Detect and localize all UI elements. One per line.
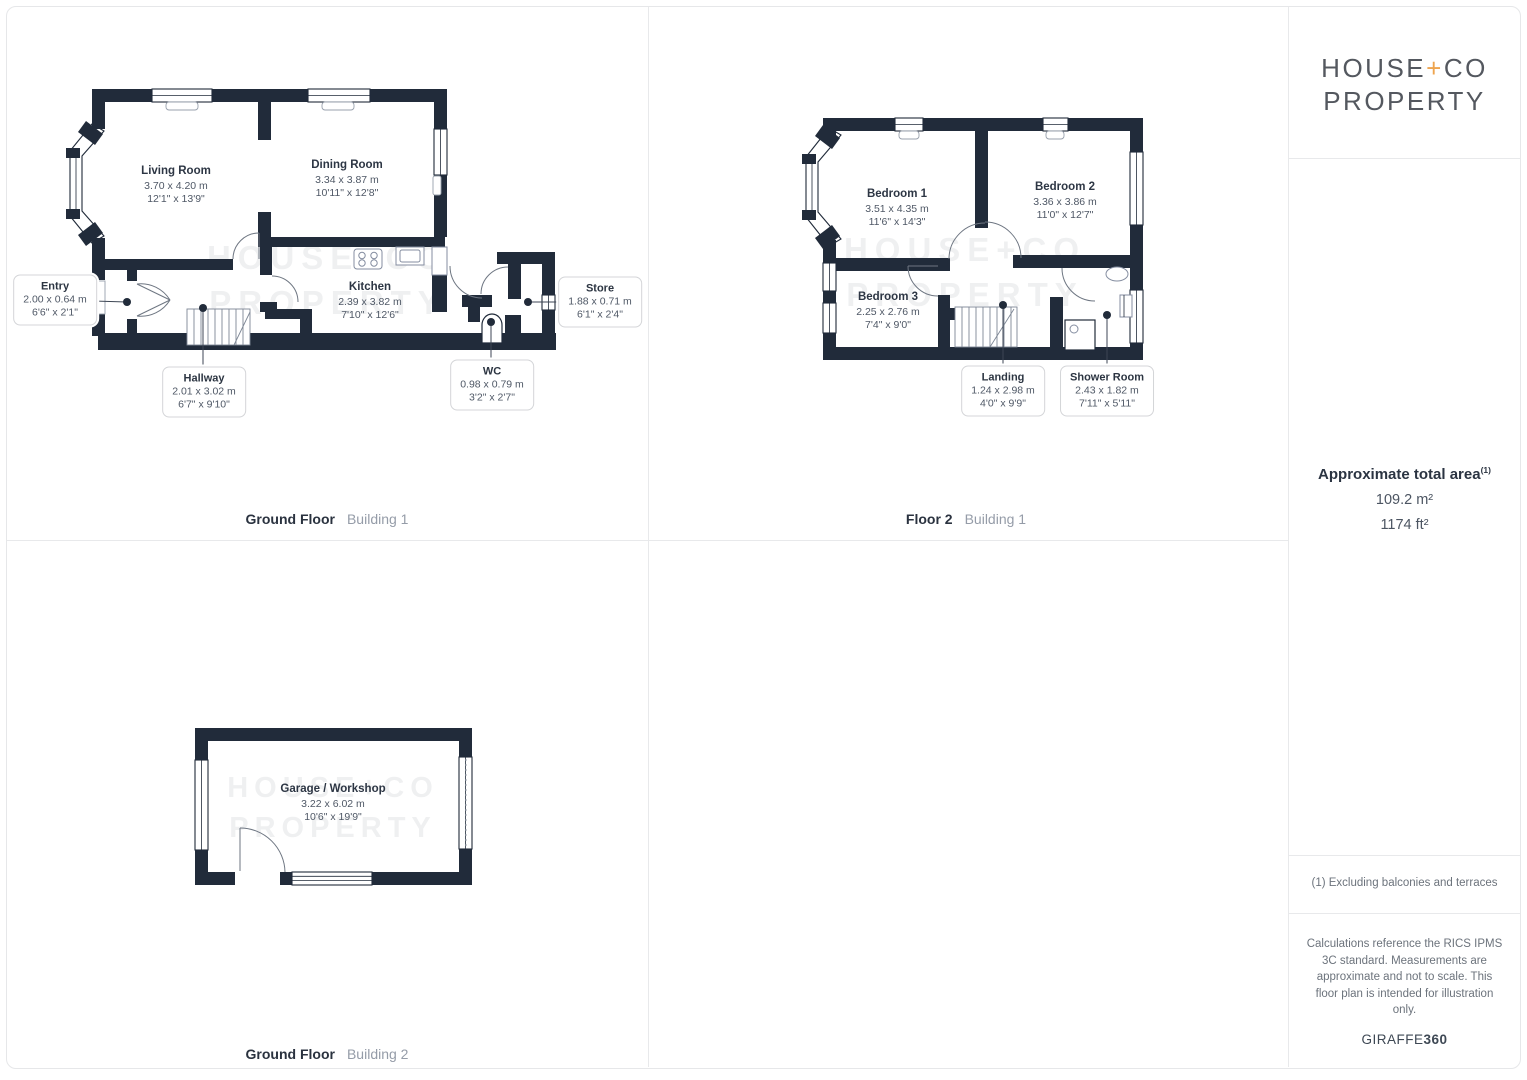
staircase-icon xyxy=(955,307,1017,347)
floor2-b1-plan xyxy=(648,0,1288,540)
doors xyxy=(240,828,285,872)
staircase-icon xyxy=(187,309,250,345)
sidebar-rule xyxy=(1289,158,1520,159)
sink-icon xyxy=(396,247,424,265)
walls xyxy=(66,89,556,350)
footnote: (1) Excluding balconies and terraces xyxy=(1289,877,1520,889)
store-tag: Store 1.88 x 0.71 m 6'1" x 2'4" xyxy=(558,277,642,328)
entry-tag: Entry 2.00 x 0.64 m 6'6" x 2'1" xyxy=(13,275,97,326)
fridge-icon xyxy=(432,247,447,275)
shower-room-tag: Shower Room 2.43 x 1.82 m 7'11" x 5'11" xyxy=(1060,366,1154,417)
gf2-caption: Ground FloorBuilding 2 xyxy=(246,1046,409,1062)
ground-floor-b1-plan xyxy=(0,0,648,540)
bay-window xyxy=(806,128,841,246)
bedroom2-label: Bedroom 2 3.36 x 3.86 m 11'0" x 12'7" xyxy=(1033,181,1097,222)
wc-tag: WC 0.98 x 0.79 m 3'2" x 2'7" xyxy=(450,360,534,411)
sidebar-rule xyxy=(1289,913,1520,914)
info-sidebar: HOUSE+CO PROPERTY Approximate total area… xyxy=(1289,6,1520,1067)
garage-label: Garage / Workshop 3.22 x 6.02 m 10'6" x … xyxy=(280,783,385,824)
sidebar-rule xyxy=(1289,855,1520,856)
radiator-icon xyxy=(1120,295,1132,317)
bedroom3-label: Bedroom 3 2.25 x 2.76 m 7'4" x 9'0" xyxy=(856,291,920,332)
disclaimer: Calculations reference the RICS IPMS 3C … xyxy=(1304,936,1505,1019)
area-metric: 109.2 m² xyxy=(1289,492,1520,508)
house-co-logo: HOUSE+CO PROPERTY xyxy=(1289,52,1520,118)
hallway-tag: Hallway 2.01 x 3.02 m 6'7" x 9'10" xyxy=(162,367,246,418)
floorplan-sheet: HOUSE+CO PROPERTY xyxy=(0,0,1527,1080)
logo-plus-icon: + xyxy=(1426,53,1444,83)
gf1-caption: Ground FloorBuilding 1 xyxy=(246,511,409,527)
shower-tray-icon xyxy=(1065,320,1095,350)
living-room-label: Living Room 3.70 x 4.20 m 12'1" x 13'9" xyxy=(141,165,211,206)
total-area-block: Approximate total area(1) 109.2 m² 1174 … xyxy=(1289,465,1520,533)
bedroom1-label: Bedroom 1 3.51 x 4.35 m 11'6" x 14'3" xyxy=(865,188,929,229)
basin-icon xyxy=(1106,267,1128,281)
f2-caption: Floor 2Building 1 xyxy=(906,511,1026,527)
giraffe360-logo: GIRAFFE360 xyxy=(1289,1032,1520,1047)
area-imperial: 1174 ft² xyxy=(1289,517,1520,533)
bay-window xyxy=(70,124,104,243)
area-footnote-marker: (1) xyxy=(1481,465,1491,475)
dining-room-label: Dining Room 3.34 x 3.87 m 10'11" x 12'8" xyxy=(311,159,383,200)
kitchen-label: Kitchen 2.39 x 3.82 m 7'10" x 12'6" xyxy=(338,281,402,322)
hob-icon xyxy=(354,249,382,269)
landing-tag: Landing 1.24 x 2.98 m 4'0" x 9'9" xyxy=(961,366,1045,417)
area-title: Approximate total area(1) xyxy=(1289,465,1520,483)
